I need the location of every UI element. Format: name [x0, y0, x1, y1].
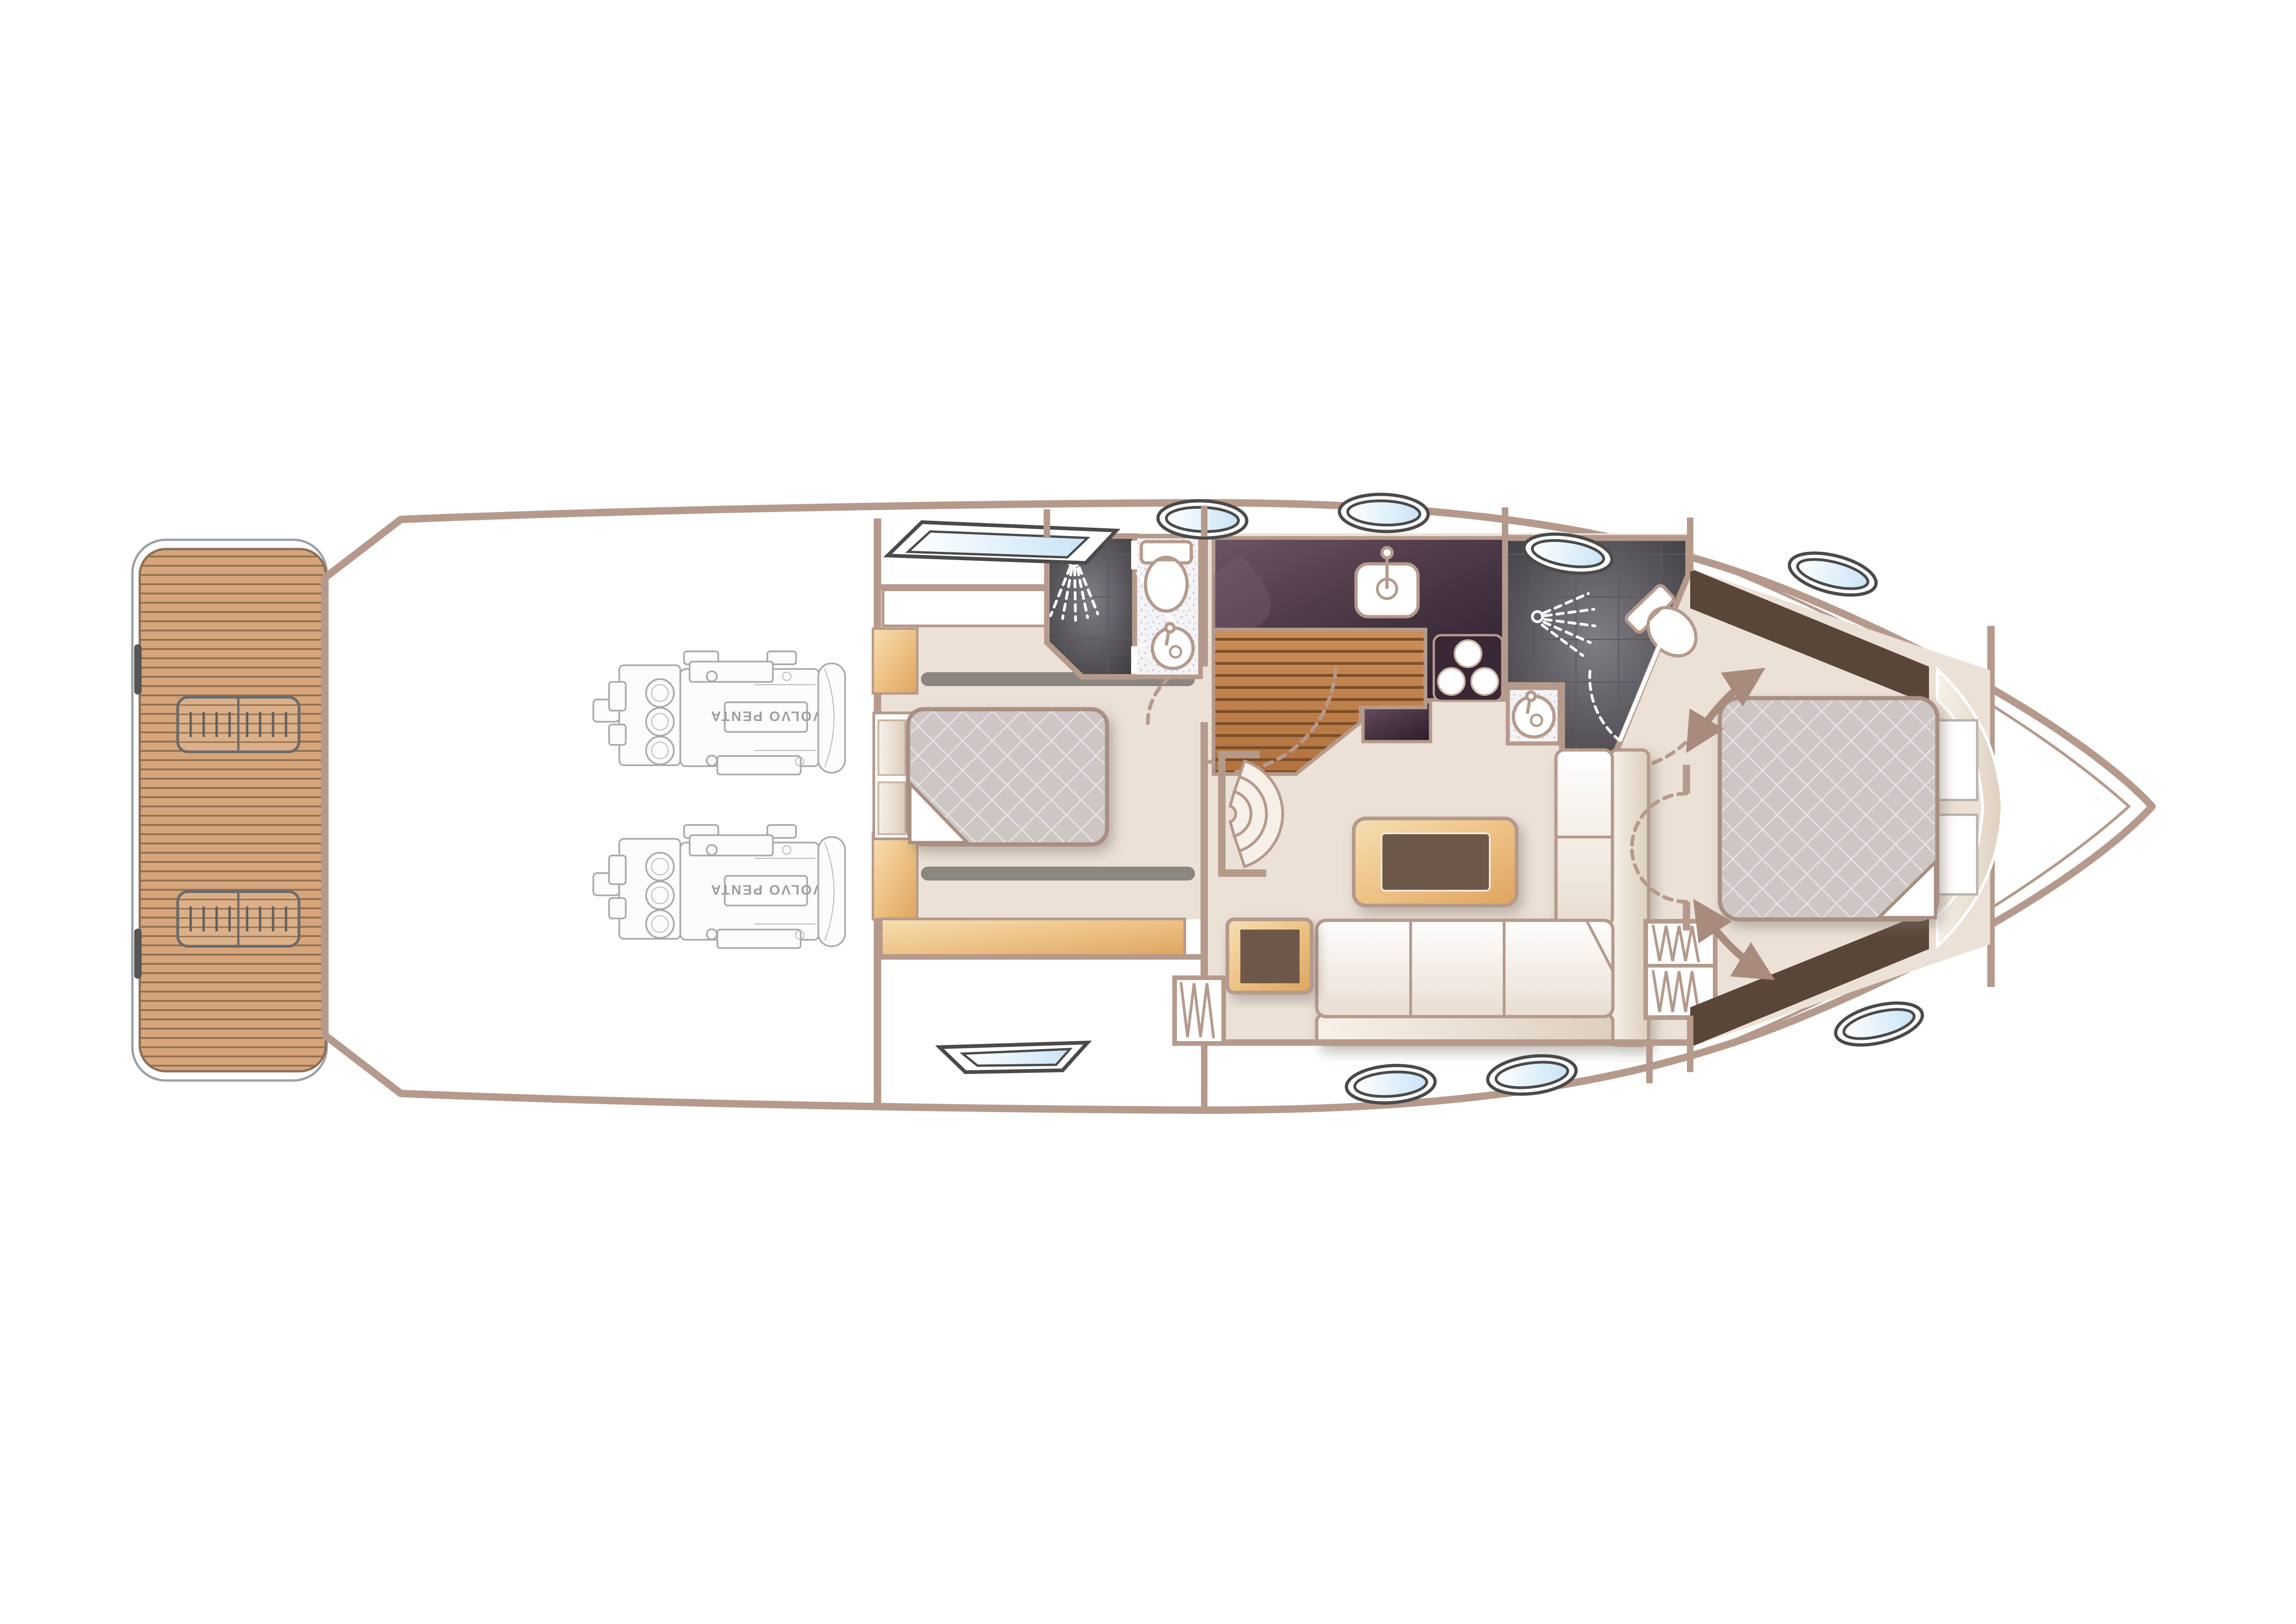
nightstand [873, 833, 917, 919]
sideboard [881, 919, 1185, 957]
berth-track [921, 867, 1195, 881]
bedside-shelf [1935, 815, 1977, 894]
skylight-icon [888, 522, 1116, 563]
island-bed [1720, 698, 1937, 919]
skylight-icon [940, 1043, 1088, 1072]
cleat [134, 929, 142, 979]
port-engine [593, 651, 845, 775]
hanging-locker-icon [1175, 978, 1224, 1043]
deck-plan-canvas: VOLVO PENTA [0, 0, 2296, 1624]
cleat [134, 644, 142, 694]
swim-platform [132, 540, 327, 1081]
door-jamb [1683, 902, 1690, 931]
teak-deck [140, 549, 326, 1071]
bedside-shelf [1935, 720, 1977, 800]
shower-glass-panel [1131, 646, 1137, 674]
shower-glass-panel [1131, 541, 1137, 569]
toilet-icon [1141, 542, 1191, 611]
platform-hatch [178, 697, 299, 752]
deck-plan-page: VOLVO PENTA [0, 0, 2296, 1624]
sofa-seat-bottom [1317, 920, 1613, 1017]
pillow [878, 720, 905, 775]
cabinet-top [1240, 930, 1300, 983]
pillow [878, 782, 905, 834]
three-burner-hob-icon [1434, 635, 1502, 701]
sofa-back-right [1611, 750, 1649, 1045]
overhead-cabinet [883, 590, 1046, 626]
door-jamb [1683, 765, 1690, 793]
nightstand [873, 629, 917, 693]
starboard-engine [593, 825, 845, 948]
platform-hatch [178, 892, 299, 946]
table-inset [1381, 833, 1490, 891]
